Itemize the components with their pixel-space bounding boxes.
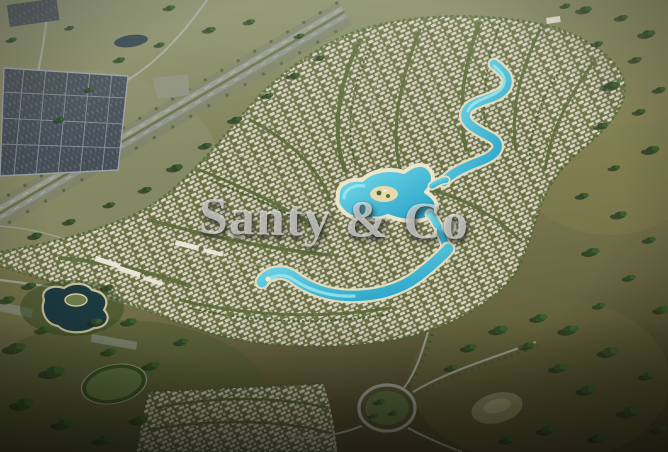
aerial-render-canvas xyxy=(0,0,668,452)
bottom-shadow-overlay xyxy=(0,0,668,452)
aerial-render-image: Santy & Co xyxy=(0,0,668,452)
